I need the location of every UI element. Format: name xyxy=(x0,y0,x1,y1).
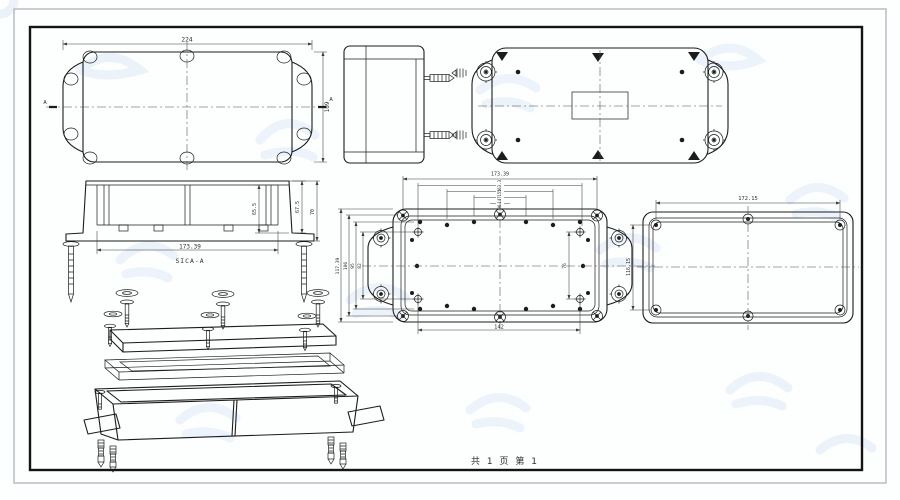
dim-base-top: 173.39 xyxy=(491,172,509,178)
dim-base-top-n2: 155 xyxy=(497,189,502,197)
dim-section-h-mid: 67.5 xyxy=(295,201,301,213)
dim-section-h-inner: 65.5 xyxy=(252,203,258,215)
dim-base-top-n4: 96 xyxy=(497,204,502,209)
mount-screw-left xyxy=(63,242,79,302)
dim-section-h-outer: 70 xyxy=(310,209,316,215)
exploded-base xyxy=(84,381,384,440)
section-mark-right: A xyxy=(329,97,333,103)
exploded-view xyxy=(84,290,384,472)
side-screw-top xyxy=(424,75,454,82)
dim-base-left-1: 117.39 xyxy=(335,257,341,274)
dim-base-left-2: 106 xyxy=(343,262,349,271)
page-note: 共 1 页 第 1 xyxy=(471,455,539,467)
dim-base-bottom: 142 xyxy=(494,325,504,331)
exploded-gasket xyxy=(105,353,344,380)
side-screw-bottom xyxy=(424,132,454,139)
section-mark-left: A xyxy=(43,100,47,106)
dim-base-left-3: 95 xyxy=(350,263,356,269)
dim-base-inner: 76 xyxy=(562,263,568,269)
side-view xyxy=(344,46,454,163)
mount-screw-right xyxy=(296,242,312,302)
small-screws xyxy=(452,69,466,140)
section-view: 65.5 67.5 70 173.39 SICA-A xyxy=(63,181,320,302)
dim-lidinside-width: 172.15 xyxy=(738,196,757,202)
drawing-sheet: 224 109 A A xyxy=(0,0,900,500)
dim-base-left-4: 82 xyxy=(357,263,363,269)
dim-lidinside-height: 116.15 xyxy=(626,258,632,276)
dim-section-width: 173.39 xyxy=(179,244,201,251)
section-label: SICA-A xyxy=(175,257,204,265)
dim-lid-width: 224 xyxy=(181,37,192,44)
crossed-holes xyxy=(413,227,586,305)
dim-base-top-n3: 147 xyxy=(497,196,502,204)
